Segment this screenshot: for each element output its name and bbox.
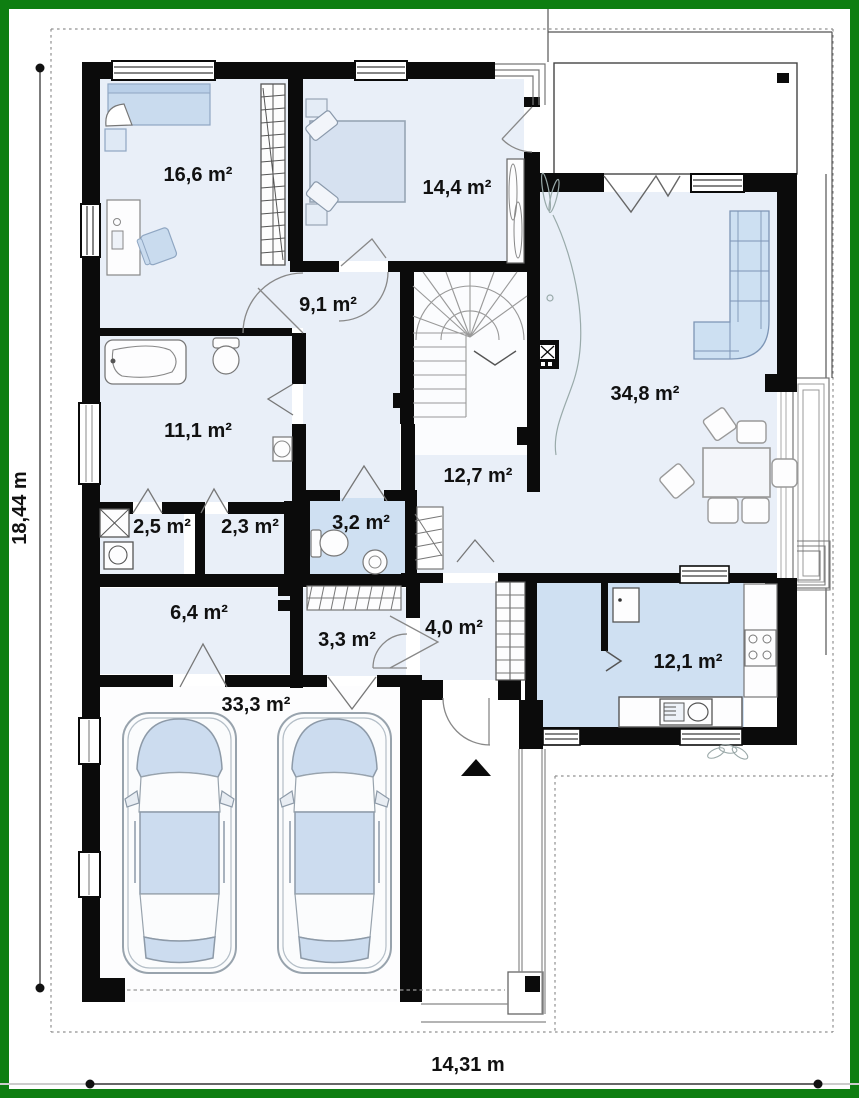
svg-text:34,8 m²: 34,8 m² [611, 383, 680, 405]
svg-text:33,3 m²: 33,3 m² [222, 694, 291, 716]
svg-text:14,4 m²: 14,4 m² [423, 177, 492, 199]
svg-text:14,31 m: 14,31 m [431, 1054, 504, 1076]
svg-text:2,5 m²: 2,5 m² [133, 516, 191, 538]
svg-text:12,1 m²: 12,1 m² [654, 651, 723, 673]
svg-text:4,0 m²: 4,0 m² [425, 617, 483, 639]
svg-text:6,4 m²: 6,4 m² [170, 602, 228, 624]
svg-text:3,3 m²: 3,3 m² [318, 629, 376, 651]
svg-text:2,3 m²: 2,3 m² [221, 516, 279, 538]
svg-text:9,1 m²: 9,1 m² [299, 294, 357, 316]
svg-text:16,6 m²: 16,6 m² [164, 164, 233, 186]
svg-text:18,44 m: 18,44 m [9, 471, 31, 544]
svg-text:11,1 m²: 11,1 m² [164, 420, 232, 442]
svg-text:3,2 m²: 3,2 m² [332, 512, 390, 534]
svg-text:12,7 m²: 12,7 m² [444, 465, 513, 487]
